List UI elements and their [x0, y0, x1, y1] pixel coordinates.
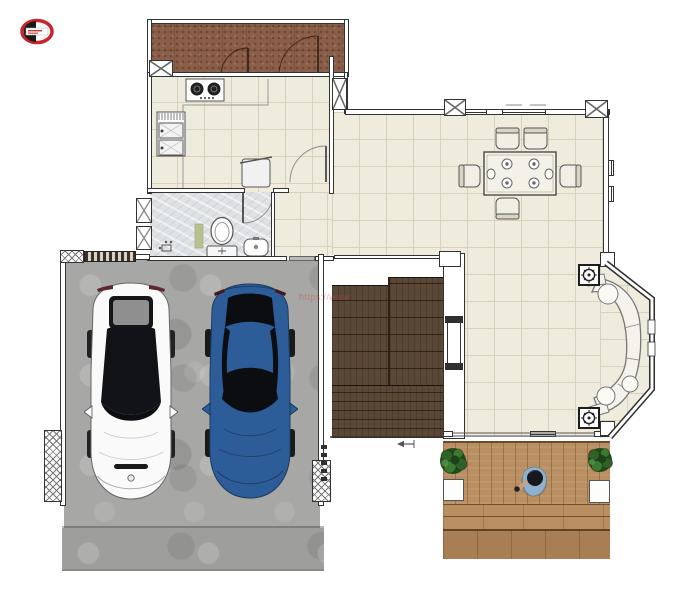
kitchen-fixtures — [150, 75, 332, 192]
window — [608, 160, 614, 176]
watermark: https://www — [299, 292, 419, 302]
fireplace-cap — [445, 316, 463, 323]
wall — [148, 19, 348, 24]
entry-arrow — [397, 440, 414, 448]
wall — [329, 56, 334, 194]
wall — [443, 431, 453, 437]
grille — [114, 464, 148, 469]
logo-text-line — [28, 30, 42, 31]
wall — [147, 256, 287, 261]
blue-car — [202, 281, 298, 501]
bathroom-sink — [244, 237, 268, 256]
wall — [147, 72, 348, 77]
ceiling-fixture-bottom — [578, 407, 600, 429]
stove — [186, 79, 224, 101]
garage-door-threshold — [289, 256, 315, 261]
sofa-pillow — [598, 284, 618, 304]
driveway — [62, 528, 324, 571]
wall-heater-upper — [136, 198, 152, 223]
badge — [128, 475, 134, 481]
side-mirror — [202, 403, 210, 415]
deck-pad-right — [589, 480, 610, 503]
sofa-pillow — [622, 376, 638, 392]
deck-lower-platform — [443, 529, 610, 559]
hallway-floor — [273, 192, 334, 258]
entry-door-2 — [279, 36, 318, 75]
ceiling-fixture-top — [578, 264, 600, 286]
pier-column — [312, 460, 331, 502]
deck-pad-left — [443, 479, 464, 501]
deck-plant-right — [584, 444, 616, 476]
porch-doors — [150, 22, 350, 78]
person — [514, 456, 552, 502]
side-mirror — [170, 406, 178, 418]
column — [149, 60, 173, 77]
wall — [271, 192, 275, 258]
bathroom-door — [243, 193, 273, 223]
sunroof — [113, 300, 149, 325]
dining-set — [455, 125, 585, 225]
white-car — [84, 280, 178, 502]
column — [585, 100, 608, 118]
column — [600, 421, 615, 436]
wall — [147, 188, 245, 193]
held-object — [514, 486, 520, 492]
person-head — [527, 470, 543, 486]
glass-canopy — [101, 325, 161, 415]
column — [444, 99, 466, 116]
windshield — [222, 368, 278, 413]
deck-plant-left — [436, 444, 470, 478]
wall — [344, 19, 349, 77]
kitchen-sink — [157, 112, 185, 156]
toilet — [207, 218, 237, 258]
trash-bin — [240, 157, 272, 187]
side-mirror — [84, 406, 92, 418]
window — [608, 186, 614, 202]
curved-sofa — [580, 272, 654, 420]
bathroom-fixtures — [150, 190, 275, 260]
column — [332, 78, 347, 110]
fireplace-body — [447, 318, 461, 368]
window — [530, 431, 556, 437]
shower-drain — [159, 241, 172, 251]
window — [502, 109, 546, 115]
brand-logo — [20, 18, 54, 45]
entry-door-1 — [221, 48, 248, 75]
pier-column — [60, 250, 84, 263]
kitchen-door — [290, 146, 326, 182]
fireplace-cap — [445, 363, 463, 370]
column — [439, 251, 461, 267]
wall — [334, 255, 443, 259]
deck-step-2 — [443, 516, 610, 529]
stair-lower-steps — [332, 385, 443, 438]
logo-text-line — [28, 33, 38, 34]
bath-mat — [195, 224, 203, 248]
side-mirror — [290, 403, 298, 415]
sofa-pillow — [597, 387, 615, 405]
wall — [147, 72, 152, 194]
deck-step-1 — [443, 504, 610, 516]
wall — [273, 188, 289, 193]
floor-plan-canvas: https://www — [0, 0, 700, 604]
garage-window-band — [84, 251, 136, 262]
wall-heater-lower — [136, 226, 152, 250]
pier-column — [44, 430, 62, 502]
logo-band — [26, 28, 48, 35]
column — [600, 252, 615, 267]
